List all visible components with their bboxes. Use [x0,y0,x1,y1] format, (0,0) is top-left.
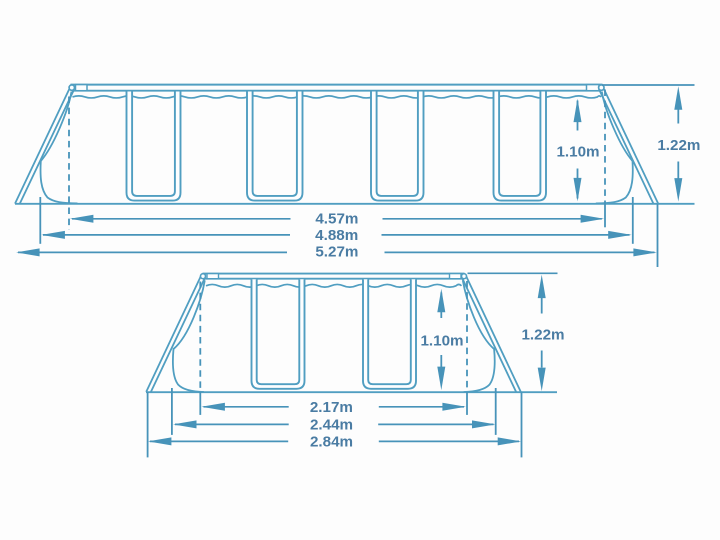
svg-text:1.10m: 1.10m [420,333,463,350]
svg-text:2.84m: 2.84m [310,434,353,451]
svg-text:1.10m: 1.10m [556,144,599,161]
svg-text:1.22m: 1.22m [521,327,564,344]
svg-text:2.17m: 2.17m [310,399,353,416]
svg-text:4.88m: 4.88m [315,227,358,244]
svg-text:5.27m: 5.27m [315,244,358,261]
svg-text:2.44m: 2.44m [310,417,353,434]
svg-text:1.22m: 1.22m [657,137,700,154]
svg-text:4.57m: 4.57m [315,210,358,227]
